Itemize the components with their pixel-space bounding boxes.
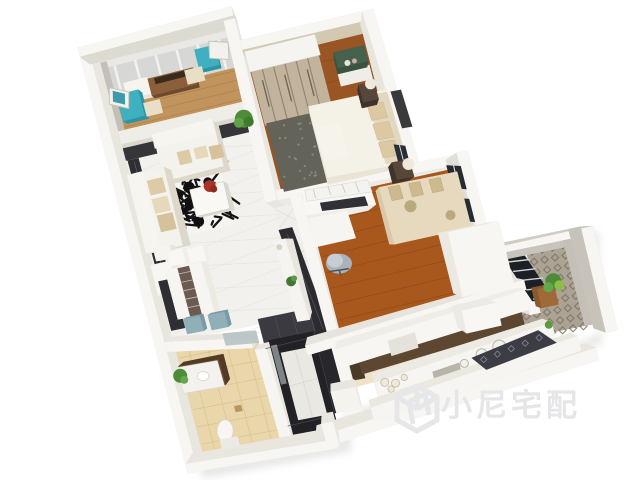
svg-text:小尼宅配: 小尼宅配: [441, 388, 581, 423]
